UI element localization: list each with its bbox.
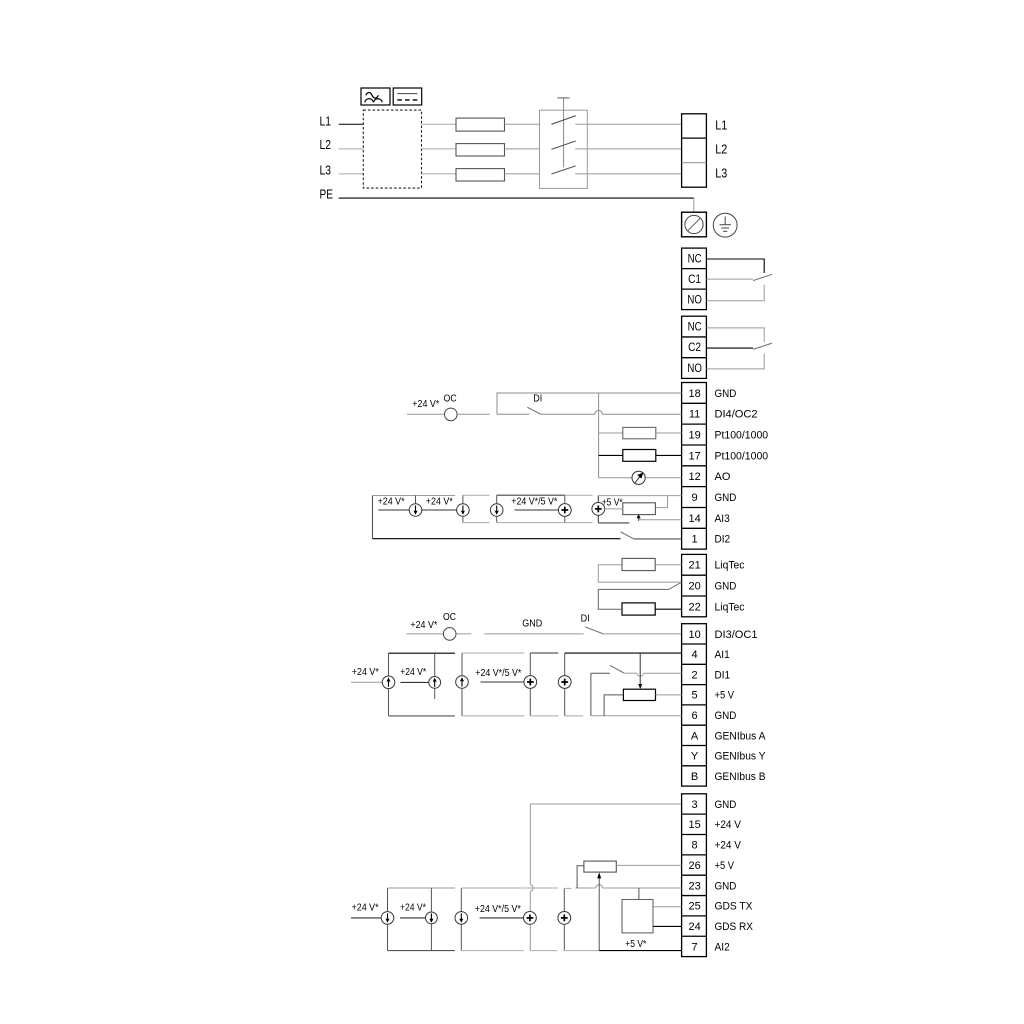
svg-text:L2: L2 <box>320 137 332 152</box>
svg-text:NC: NC <box>688 321 702 333</box>
svg-text:+24 V*: +24 V* <box>352 666 379 678</box>
svg-text:GDS RX: GDS RX <box>715 921 754 933</box>
svg-text:+24 V*: +24 V* <box>378 496 405 508</box>
svg-text:LiqTec: LiqTec <box>715 601 745 613</box>
svg-text:12: 12 <box>688 471 700 483</box>
svg-text:DI2: DI2 <box>715 534 731 546</box>
svg-text:LiqTec: LiqTec <box>715 560 745 572</box>
svg-text:GENIbus A: GENIbus A <box>715 730 767 742</box>
svg-text:17: 17 <box>688 450 700 462</box>
svg-text:L3: L3 <box>715 166 727 181</box>
svg-text:GENIbus Y: GENIbus Y <box>715 751 767 763</box>
svg-text:GENIbus B: GENIbus B <box>715 771 766 783</box>
svg-text:GDS TX: GDS TX <box>715 901 754 913</box>
svg-text:14: 14 <box>688 513 700 525</box>
svg-text:+5 V*: +5 V* <box>625 938 646 950</box>
svg-text:1: 1 <box>692 534 698 546</box>
svg-text:C1: C1 <box>688 274 701 286</box>
svg-text:AI2: AI2 <box>715 941 730 953</box>
svg-text:OC: OC <box>443 611 456 623</box>
svg-text:18: 18 <box>688 388 700 400</box>
svg-text:AO: AO <box>715 471 731 483</box>
svg-text:+24 V*/5 V*: +24 V*/5 V* <box>511 496 557 508</box>
svg-text:23: 23 <box>688 880 700 892</box>
svg-text:Y: Y <box>691 751 699 763</box>
svg-text:2: 2 <box>692 669 698 681</box>
svg-text:DI: DI <box>533 393 542 405</box>
svg-text:24: 24 <box>688 921 700 933</box>
svg-text:GND: GND <box>715 880 737 892</box>
svg-text:21: 21 <box>688 560 700 572</box>
svg-text:11: 11 <box>689 409 700 421</box>
svg-text:6: 6 <box>692 710 698 722</box>
svg-text:+24 V: +24 V <box>715 840 742 852</box>
svg-text:AI1: AI1 <box>715 649 730 661</box>
svg-text:GND: GND <box>715 492 737 504</box>
svg-text:Pt100/1000: Pt100/1000 <box>715 450 769 462</box>
svg-text:+24 V: +24 V <box>715 819 742 831</box>
svg-text:25: 25 <box>688 901 700 913</box>
svg-text:NC: NC <box>688 253 702 265</box>
svg-text:C2: C2 <box>688 342 701 354</box>
svg-text:AI3: AI3 <box>715 513 730 525</box>
svg-text:+24 V*: +24 V* <box>426 496 453 508</box>
svg-text:3: 3 <box>692 799 698 811</box>
svg-text:+24 V*/5 V*: +24 V*/5 V* <box>475 667 521 679</box>
svg-text:OC: OC <box>444 392 457 404</box>
svg-text:+24 V*/5 V*: +24 V*/5 V* <box>475 903 521 915</box>
svg-text:4: 4 <box>692 649 698 661</box>
svg-text:A: A <box>691 730 699 742</box>
svg-text:20: 20 <box>688 581 700 593</box>
svg-text:10: 10 <box>688 629 700 641</box>
svg-text:DI1: DI1 <box>715 669 731 681</box>
svg-text:GND: GND <box>715 581 737 593</box>
svg-text:+24 V*: +24 V* <box>352 902 379 914</box>
svg-text:GND: GND <box>715 710 737 722</box>
svg-text:PE: PE <box>320 187 334 202</box>
svg-text:L1: L1 <box>715 117 727 132</box>
svg-text:+5 V: +5 V <box>715 690 735 702</box>
svg-text:GND: GND <box>715 799 737 811</box>
svg-text:+24 V*: +24 V* <box>400 902 426 914</box>
svg-text:19: 19 <box>688 429 700 441</box>
svg-text:+24 V*: +24 V* <box>412 398 439 410</box>
svg-text:L1: L1 <box>320 114 332 129</box>
svg-text:+24 V*: +24 V* <box>410 619 437 631</box>
svg-text:L2: L2 <box>715 142 727 157</box>
svg-text:NO: NO <box>687 363 702 375</box>
svg-text:+5 V: +5 V <box>715 860 735 872</box>
svg-text:DI: DI <box>581 613 590 625</box>
svg-text:26: 26 <box>688 860 700 872</box>
svg-text:L3: L3 <box>320 162 332 177</box>
svg-text:7: 7 <box>692 941 698 953</box>
svg-text:Pt100/1000: Pt100/1000 <box>715 429 769 441</box>
svg-text:DI4/OC2: DI4/OC2 <box>715 409 758 421</box>
svg-text:5: 5 <box>692 690 698 702</box>
svg-text:GND: GND <box>715 388 737 400</box>
svg-text:+5 V*: +5 V* <box>602 496 623 508</box>
svg-text:+24 V*: +24 V* <box>400 666 426 678</box>
svg-text:8: 8 <box>692 840 698 852</box>
svg-text:15: 15 <box>688 819 700 831</box>
svg-text:B: B <box>691 771 698 783</box>
svg-text:9: 9 <box>692 492 698 504</box>
svg-text:DI3/OC1: DI3/OC1 <box>715 629 758 641</box>
svg-text:NO: NO <box>687 294 702 306</box>
svg-text:22: 22 <box>688 601 700 613</box>
svg-text:GND: GND <box>522 618 542 630</box>
